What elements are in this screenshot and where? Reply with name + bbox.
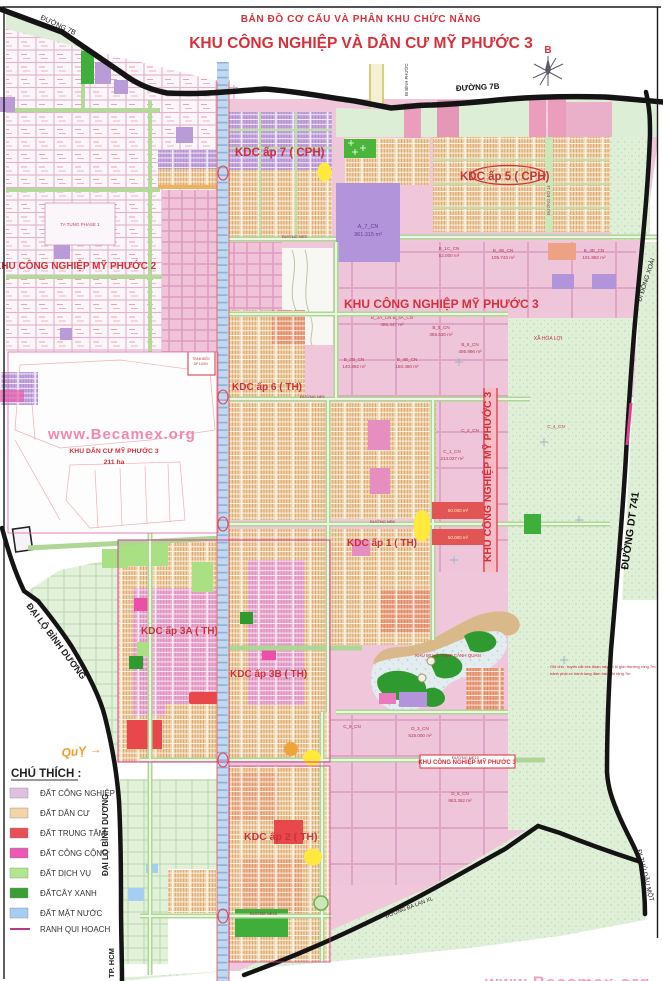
svg-text:C_1_CN: C_1_CN <box>443 449 461 454</box>
svg-text:105.743 m²: 105.743 m² <box>491 255 515 260</box>
svg-text:B_3B_CN: B_3B_CN <box>344 357 364 362</box>
svg-text:50.000 m²: 50.000 m² <box>448 508 469 513</box>
svg-text:B_5_CN: B_5_CN <box>432 325 449 330</box>
svg-text:ĐẤT TRUNG TÂM: ĐẤT TRUNG TÂM <box>40 828 106 838</box>
svg-text:863.362 m²: 863.362 m² <box>448 798 472 803</box>
svg-text:365.530 m²: 365.530 m² <box>429 332 453 337</box>
svg-text:150.480 m²: 150.480 m² <box>395 364 419 369</box>
svg-text:KHU CÔNG NGHIỆP MỸ PHƯỚC 2: KHU CÔNG NGHIỆP MỸ PHƯỚC 2 <box>0 259 157 272</box>
svg-text:ĐƯỜNG NE3: ĐƯỜNG NE3 <box>282 234 307 239</box>
svg-text:214.027 m²: 214.027 m² <box>440 456 464 461</box>
svg-text:KHU DÂN CƯ MỸ PHƯỚC 3: KHU DÂN CƯ MỸ PHƯỚC 3 <box>69 446 158 455</box>
svg-text:KDC ấp 6 ( TH): KDC ấp 6 ( TH) <box>232 381 302 393</box>
svg-text:www.Becamex.org: www.Becamex.org <box>484 973 651 981</box>
svg-text:ĐẤT CÔNG NGHIỆP: ĐẤT CÔNG NGHIỆP <box>40 788 115 798</box>
svg-text:BẢN ĐỒ CƠ CẤU VÀ PHÂN KHU CHỨC: BẢN ĐỒ CƠ CẤU VÀ PHÂN KHU CHỨC NĂNG <box>241 12 482 25</box>
svg-text:ĐƯỜNG NE12: ĐƯỜNG NE12 <box>452 755 480 760</box>
svg-text:KDC ấp 1 ( TH): KDC ấp 1 ( TH) <box>347 537 417 549</box>
svg-text:C_9_CN: C_9_CN <box>343 724 361 729</box>
svg-text:XÃ HÒA LỢI: XÃ HÒA LỢI <box>534 335 562 342</box>
svg-text:KDC ấp 7 ( CPH): KDC ấp 7 ( CPH) <box>235 147 325 159</box>
svg-text:TP. HCM: TP. HCM <box>107 948 116 978</box>
svg-text:B_6_CN: B_6_CN <box>461 342 478 347</box>
svg-text:B_4B_CN: B_4B_CN <box>493 248 513 253</box>
svg-text:406.996 m²: 406.996 m² <box>458 349 482 354</box>
svg-text:B: B <box>544 45 551 56</box>
svg-text:211 ha: 211 ha <box>104 459 125 466</box>
svg-text:50.000 m²: 50.000 m² <box>448 535 469 540</box>
svg-text:D_8_CN: D_8_CN <box>451 791 469 796</box>
svg-text:KDC ấp 2 ( TH): KDC ấp 2 ( TH) <box>244 831 318 843</box>
svg-text:140.892 m²: 140.892 m² <box>342 364 366 369</box>
svg-text:ĐẤT MẶT NƯỚC: ĐẤT MẶT NƯỚC <box>40 908 103 918</box>
svg-text:ĐƯỜNG NE16: ĐƯỜNG NE16 <box>250 911 278 916</box>
svg-text:D_3_CN: D_3_CN <box>411 726 429 731</box>
svg-text:www.Becamex.org: www.Becamex.org <box>47 426 196 443</box>
svg-text:KHU 50 HỐ TVMP CẢNH QUAN: KHU 50 HỐ TVMP CẢNH QUAN <box>415 652 481 658</box>
svg-text:361.315 m²: 361.315 m² <box>354 232 382 238</box>
svg-text:ĐẤT CÔNG CỘNG: ĐẤT CÔNG CỘNG <box>40 848 108 858</box>
svg-text:KHU CÔNG NGHIỆP VÀ DÂN CƯ MỸ: KHU CÔNG NGHIỆP VÀ DÂN CƯ MỸ PHƯỚC 3 <box>189 34 533 52</box>
svg-text:Ghi chú : tuyến cắt xéc đoạn n: Ghi chú : tuyến cắt xéc đoạn này có lộ g… <box>550 664 656 669</box>
svg-text:101.882 m²: 101.882 m² <box>582 255 606 260</box>
svg-text:TA TUNG PHASE 1: TA TUNG PHASE 1 <box>60 222 100 227</box>
svg-text:ĐI BÌNH PHƯỚC: ĐI BÌNH PHƯỚC <box>404 63 409 96</box>
svg-text:B_1C_CN: B_1C_CN <box>439 246 460 251</box>
svg-text:ĐƯỜNG NE5: ĐƯỜNG NE5 <box>300 394 325 399</box>
svg-text:B_4E_CN: B_4E_CN <box>584 248 604 253</box>
svg-text:B_4B_CN: B_4B_CN <box>397 357 417 362</box>
svg-text:ĐẤTCÂY XANH: ĐẤTCÂY XANH <box>40 888 97 898</box>
svg-text:TRẠM BIẾN: TRẠM BIẾN <box>192 356 210 361</box>
svg-text:ĐƯỜNG ĐỒ 14: ĐƯỜNG ĐỒ 14 <box>546 185 551 215</box>
svg-text:bảnh phải có hành lang đảm bảo: bảnh phải có hành lang đảm bảo vật rộng … <box>550 671 631 676</box>
svg-text:KHU CÔNG NGHIỆP MỸ PHƯỚC 3: KHU CÔNG NGHIỆP MỸ PHƯỚC 3 <box>344 296 539 311</box>
svg-text:CHÚ THÍCH :: CHÚ THÍCH : <box>11 767 81 780</box>
svg-text:C_4_CN: C_4_CN <box>547 424 565 429</box>
svg-text:486.447 m²: 486.447 m² <box>380 322 404 327</box>
svg-text:52.000 m²: 52.000 m² <box>439 253 460 258</box>
svg-text:KDC ấp 3A ( TH): KDC ấp 3A ( TH) <box>141 625 218 637</box>
svg-text:KDC ấp 3B ( TH): KDC ấp 3B ( TH) <box>230 668 307 680</box>
svg-text:C_2_CN: C_2_CN <box>461 428 479 433</box>
svg-text:RANH QUI HOẠCH: RANH QUI HOẠCH <box>40 925 110 934</box>
svg-text:ĐẤT DÂN CƯ: ĐẤT DÂN CƯ <box>40 808 90 818</box>
svg-text:515.000 m²: 515.000 m² <box>408 733 432 738</box>
svg-text:ÁP 110KV: ÁP 110KV <box>194 362 209 366</box>
svg-text:ĐẤT DỊCH VỤ: ĐẤT DỊCH VỤ <box>40 868 91 878</box>
svg-text:ĐƯỜNG NE8: ĐƯỜNG NE8 <box>370 519 395 524</box>
svg-text:A_7_CN: A_7_CN <box>358 224 379 230</box>
